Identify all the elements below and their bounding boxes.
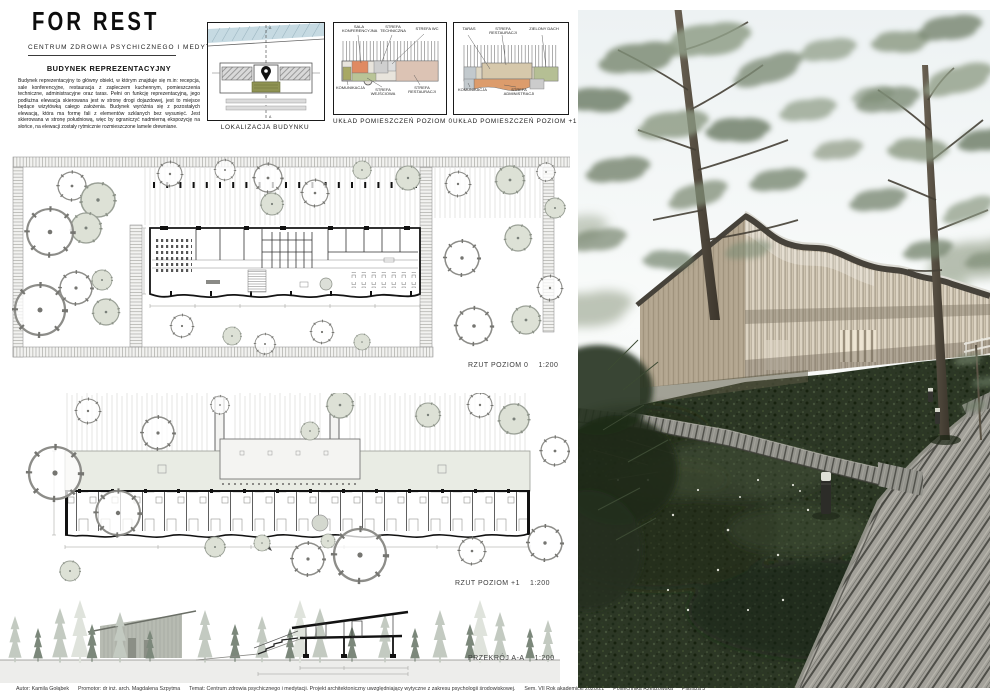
- diagram-level0-drawing: [334, 23, 446, 114]
- footer-author: Autor: Kamila Gołąbek: [16, 686, 69, 692]
- plan0-scale: 1:200: [538, 362, 558, 369]
- footer-topic: Temat: Centrum zdrowia psychicznego i me…: [189, 686, 515, 692]
- render-visualization: [578, 10, 990, 688]
- lamella-field: [145, 168, 540, 225]
- zone-label: STREFA WC: [414, 27, 440, 31]
- logo-block: FOR REST CENTRUM ZDROWIA PSYCHICZNEGO I …: [28, 8, 188, 56]
- plan0-caption: RZUT POZIOM 0 1:200: [468, 362, 558, 369]
- zone-label: KOMUNIKACJA: [458, 88, 486, 92]
- presentation-board: FOR REST CENTRUM ZDROWIA PSYCHICZNEGO I …: [0, 0, 1000, 700]
- plan1-scale: 1:200: [530, 580, 550, 587]
- diagram-location-caption: LOKALIZACJA BUDYNKU: [207, 124, 323, 131]
- section-drawing: [0, 598, 560, 683]
- zone-label: SALA KONFERENCYJNA: [342, 25, 376, 34]
- logo-rule: [28, 55, 176, 56]
- diagram-location: A A: [207, 22, 325, 121]
- plan1-caption: RZUT POZIOM +1 1:200: [455, 580, 550, 587]
- plan-level1-drawing: [10, 393, 570, 593]
- intro-title: BUDYNEK REPREZENTACYJNY: [18, 64, 200, 73]
- intro-body: Budynek reprezentacyjny to główny obiekt…: [18, 78, 200, 130]
- section-label: PRZEKRÓJ A-A: [468, 655, 525, 662]
- diagram-level1: TARAS STREFA RESTAURACJI ZIELONY DACH KO…: [453, 22, 569, 115]
- diagram-level0-caption: UKŁAD POMIESZCZEŃ POZIOM 0: [333, 118, 445, 125]
- logo-subtitle: CENTRUM ZDROWIA PSYCHICZNEGO I MEDYTACJI: [28, 44, 185, 51]
- diagram-level0: SALA KONFERENCYJNA STREFA TECHNICZNA STR…: [333, 22, 447, 115]
- diagram-location-drawing: A A: [208, 23, 324, 120]
- section-scale: 1:200: [535, 655, 555, 662]
- diagram-level1-drawing: [454, 23, 568, 114]
- footer-credits: Autor: Kamila Gołąbek Promotor: dr inż. …: [16, 686, 568, 692]
- zone-label: STREFA WEJŚCIOWA: [368, 88, 398, 97]
- section-mark-bottom: A: [269, 115, 272, 119]
- section-building-left: [88, 611, 196, 658]
- plan-level0-drawing: [10, 148, 570, 380]
- zone-label: STREFA ADMINISTRACJI: [498, 88, 540, 97]
- zone-label: KOMUNIKACJA: [336, 86, 364, 90]
- zone-label: STREFA RESTAURACJI: [484, 27, 522, 36]
- building-plan-level0: [150, 226, 420, 297]
- zone-label: TARAS: [458, 27, 480, 31]
- plan1-label: RZUT POZIOM +1: [455, 580, 520, 587]
- logo-title: FOR REST: [32, 8, 159, 34]
- diagram-level1-caption: UKŁAD POMIESZCZEŃ POZIOM +1: [453, 118, 567, 125]
- section-caption: PRZEKRÓJ A-A 1:200: [468, 655, 555, 662]
- terrace: [220, 439, 360, 485]
- intro-block: BUDYNEK REPREZENTACYJNY Budynek reprezen…: [18, 64, 200, 130]
- stair: [248, 270, 266, 292]
- zone-label: STREFA RESTAURACJI: [404, 86, 440, 95]
- zone-label: ZIELONY DACH: [528, 27, 560, 31]
- plan0-label: RZUT POZIOM 0: [468, 362, 528, 369]
- conference-seating: [156, 236, 192, 274]
- zone-label: STREFA TECHNICZNA: [378, 25, 408, 34]
- lamella-posts: [153, 182, 417, 188]
- footer-promotor: Promotor: dr inż. arch. Magdalena Szpytm…: [78, 686, 180, 692]
